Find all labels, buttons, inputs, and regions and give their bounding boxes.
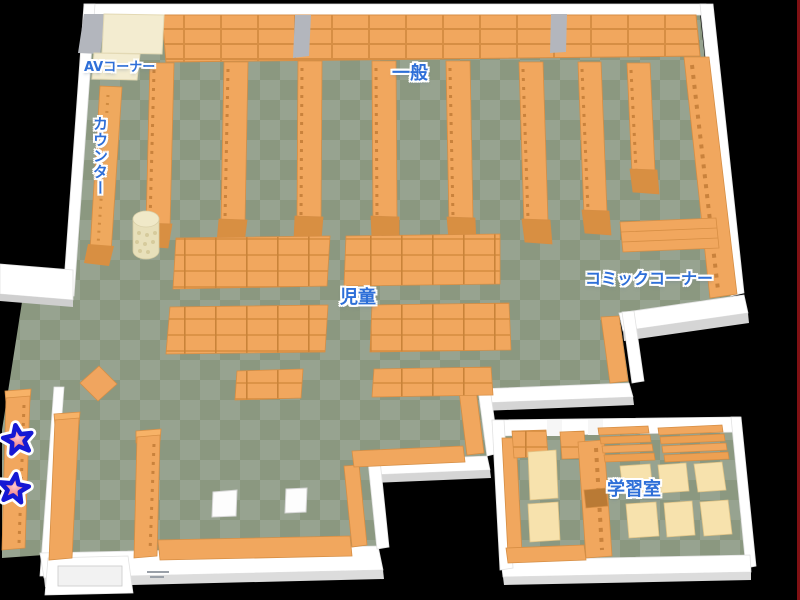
- counter-end-cap: [84, 244, 114, 266]
- west-protruding-wall: [0, 264, 73, 300]
- low-shelf: [173, 236, 330, 289]
- north-wall: [84, 4, 706, 15]
- low-shelf: [166, 305, 328, 354]
- table: [285, 488, 307, 513]
- low-shelf: [344, 234, 500, 286]
- divider-notch: [584, 488, 608, 508]
- entrance-alcove-inner: [58, 566, 122, 586]
- bookshelf: [506, 545, 586, 563]
- label-study-room: 学習室: [607, 475, 661, 501]
- study-table: [528, 450, 558, 500]
- study-table: [700, 500, 732, 536]
- bookshelf: [519, 62, 548, 223]
- low-shelf: [370, 303, 511, 352]
- low-shelf: [235, 369, 303, 400]
- study-table: [626, 502, 659, 538]
- north-wall-shelves: [162, 14, 700, 62]
- cylinder-display: [133, 211, 159, 259]
- label-children: 児童: [340, 283, 376, 309]
- floor-map-canvas: [0, 0, 800, 600]
- label-counter: カウンター: [90, 116, 111, 196]
- label-comic-corner: コミックコーナー: [585, 265, 713, 289]
- bookshelf-end-cap: [630, 169, 659, 194]
- study-table: [658, 463, 689, 493]
- pillar: [550, 14, 567, 53]
- low-shelf: [372, 367, 493, 397]
- wall-shelf-band: [162, 15, 700, 62]
- library-floor-map: AVコーナー 一般 カウンター 児童 コミックコーナー 学習室: [0, 0, 800, 600]
- bookshelf-end-cap: [582, 210, 611, 235]
- bookshelf-end-cap: [522, 219, 552, 244]
- bookshelf: [146, 63, 174, 227]
- table: [212, 490, 237, 517]
- cylinder-top: [133, 211, 159, 227]
- label-av-corner: AVコーナー: [84, 56, 155, 75]
- study-table: [528, 502, 560, 542]
- label-general: 一般: [392, 59, 428, 85]
- pillar: [293, 15, 311, 58]
- study-table: [694, 462, 726, 492]
- comic-shelf: [620, 218, 719, 252]
- wall-bookshelf: [158, 536, 352, 560]
- study-table: [664, 501, 695, 537]
- bookshelf: [134, 435, 160, 558]
- av-counter-top: [102, 14, 164, 54]
